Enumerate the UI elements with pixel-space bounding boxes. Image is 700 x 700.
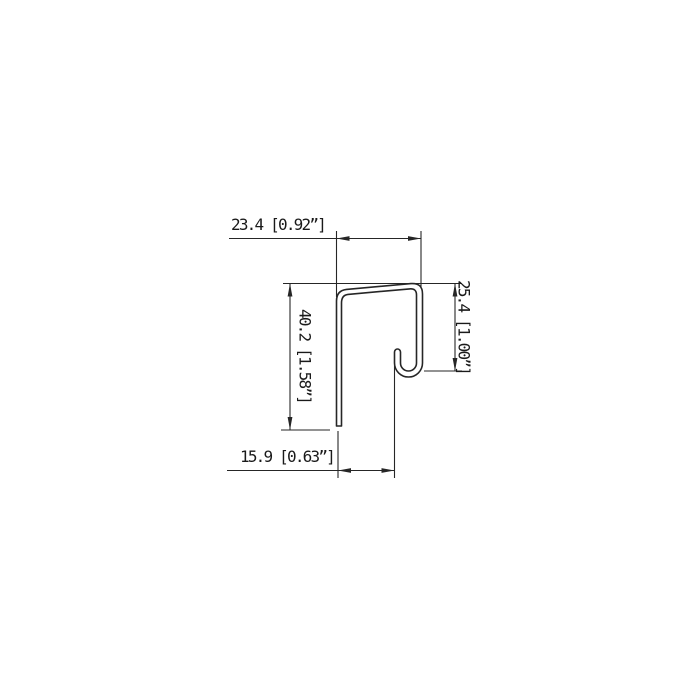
drawing-canvas: 23.4 [0.92”] 40.2 [1.58”] 25.4 [1.00”] 1… [0, 0, 700, 700]
dim-left-arrow-down [288, 417, 293, 430]
dim-right-height: 25.4 [1.00”] [424, 280, 473, 374]
profile-dimension-drawing: 23.4 [0.92”] 40.2 [1.58”] 25.4 [1.00”] 1… [0, 0, 700, 700]
dim-left-arrow-up [288, 284, 293, 297]
dim-left-height: 40.2 [1.58”] [281, 284, 330, 431]
dim-bottom-arrow-right [382, 468, 395, 473]
dim-right-height-label: 25.4 [1.00”] [454, 280, 473, 374]
dim-top-arrow-left [337, 236, 350, 241]
dim-bottom-arrow-left [338, 468, 351, 473]
dim-top-arrow-right [408, 236, 421, 241]
dim-top-width-label: 23.4 [0.92”] [231, 215, 325, 234]
dim-bottom-width-label: 15.9 [0.63”] [240, 447, 334, 466]
profile-outline [337, 284, 423, 426]
dim-left-height-label: 40.2 [1.58”] [295, 309, 314, 403]
